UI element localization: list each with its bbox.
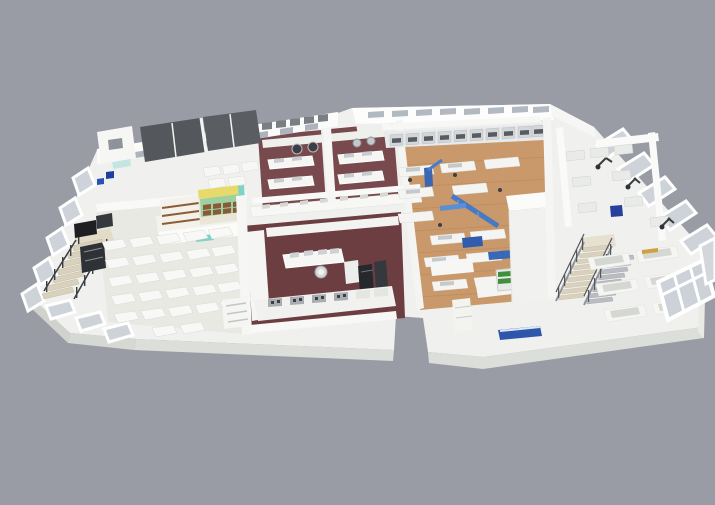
wall-equipment-slot <box>304 116 314 124</box>
steam-kettle <box>292 144 302 154</box>
machine-unit-slot <box>504 131 513 136</box>
retail-shelf-goods <box>213 209 221 215</box>
machine-unit-slot <box>520 130 529 135</box>
hall-speck <box>438 223 442 227</box>
fridge-dark <box>374 260 388 290</box>
wall-sign-blue <box>106 171 114 179</box>
burner-dot <box>277 300 280 303</box>
entry-stair-post <box>70 245 71 256</box>
stair-post <box>588 290 589 302</box>
burner-dot <box>321 296 324 299</box>
machine-unit-slot <box>534 129 543 134</box>
kitchen-island-item <box>318 249 327 255</box>
cleanroom-equipment <box>572 176 591 187</box>
cleanroom-equipment <box>624 196 643 207</box>
top-wall-window <box>368 111 384 118</box>
top-wall-window <box>440 108 456 115</box>
robot-base <box>626 185 631 190</box>
machine-unit-slot <box>456 134 465 139</box>
machine-unit-slot <box>472 133 481 138</box>
retail-shelf-goods <box>203 210 211 216</box>
machine-unit-slot <box>408 137 417 142</box>
hall-speck <box>408 178 412 182</box>
top-wall-window <box>416 109 432 116</box>
cook-line-white-box <box>374 288 388 297</box>
burner-dot <box>343 294 346 297</box>
monolith-room-front <box>509 207 552 303</box>
machine-unit-slot <box>392 138 401 143</box>
steam-kettle <box>308 142 318 152</box>
kitchen-island-item <box>304 250 313 256</box>
wall-equipment-slot <box>276 120 286 128</box>
top-wall-window <box>392 110 408 117</box>
retail-shelf-goods <box>223 202 231 208</box>
stair-post <box>594 278 595 290</box>
burner-dot <box>337 295 340 298</box>
kitchen-island-item <box>330 248 339 254</box>
machine-blue-box <box>462 236 483 248</box>
stair-post <box>610 244 611 256</box>
top-wall-window <box>512 106 528 113</box>
top-wall-window <box>533 106 549 113</box>
cleanroom-equipment <box>612 170 631 181</box>
cleanroom-equipment <box>590 147 609 158</box>
floorplan-svg <box>0 0 715 505</box>
top-wall-window <box>488 107 504 114</box>
hall-white-shelf <box>452 298 473 332</box>
entry-stair-post <box>54 269 55 280</box>
kettle-dome-top <box>318 269 324 275</box>
stair-post <box>582 238 583 250</box>
render-viewport <box>0 0 715 505</box>
retail-shelf-goods <box>223 208 231 214</box>
retail-shelf-goods <box>203 204 211 210</box>
burner-dot <box>315 297 318 300</box>
steam-kettle <box>353 139 361 147</box>
machine-unit-slot <box>440 135 449 140</box>
kitchen-island-item <box>290 252 299 258</box>
machine-unit-slot <box>424 136 433 141</box>
wall-equipment-slot <box>262 122 272 130</box>
steam-kettle <box>367 137 375 145</box>
stair-post <box>576 250 577 262</box>
burner-dot <box>299 298 302 301</box>
wall-equipment-slot <box>318 114 328 122</box>
wall-sign-blue <box>97 178 104 185</box>
hall-speck <box>453 173 457 177</box>
cleanroom-equipment <box>614 144 633 155</box>
retail-shelf-goods <box>213 203 221 209</box>
entry-stair-post <box>46 281 47 292</box>
wall-equipment-slot <box>290 118 300 126</box>
burner-dot <box>293 299 296 302</box>
corner-room-window <box>108 138 123 150</box>
entry-stair-post <box>76 287 77 298</box>
cook-line-white-box <box>356 290 370 299</box>
fridge-white <box>344 260 360 284</box>
stair-post <box>564 274 565 286</box>
top-wall-window <box>464 108 480 115</box>
stair-post <box>570 262 571 274</box>
machine-unit-slot <box>488 132 497 137</box>
cleanroom-equipment <box>578 202 597 213</box>
cleanroom-blue-box <box>610 205 623 217</box>
entry-stair-post <box>62 257 63 268</box>
cleanroom-equipment <box>566 150 585 161</box>
robot-base <box>660 225 665 230</box>
robot-base <box>596 165 601 170</box>
entry-stair-post <box>84 275 85 286</box>
hall-speck <box>498 188 502 192</box>
stair-post <box>558 286 559 298</box>
burner-dot <box>271 301 274 304</box>
